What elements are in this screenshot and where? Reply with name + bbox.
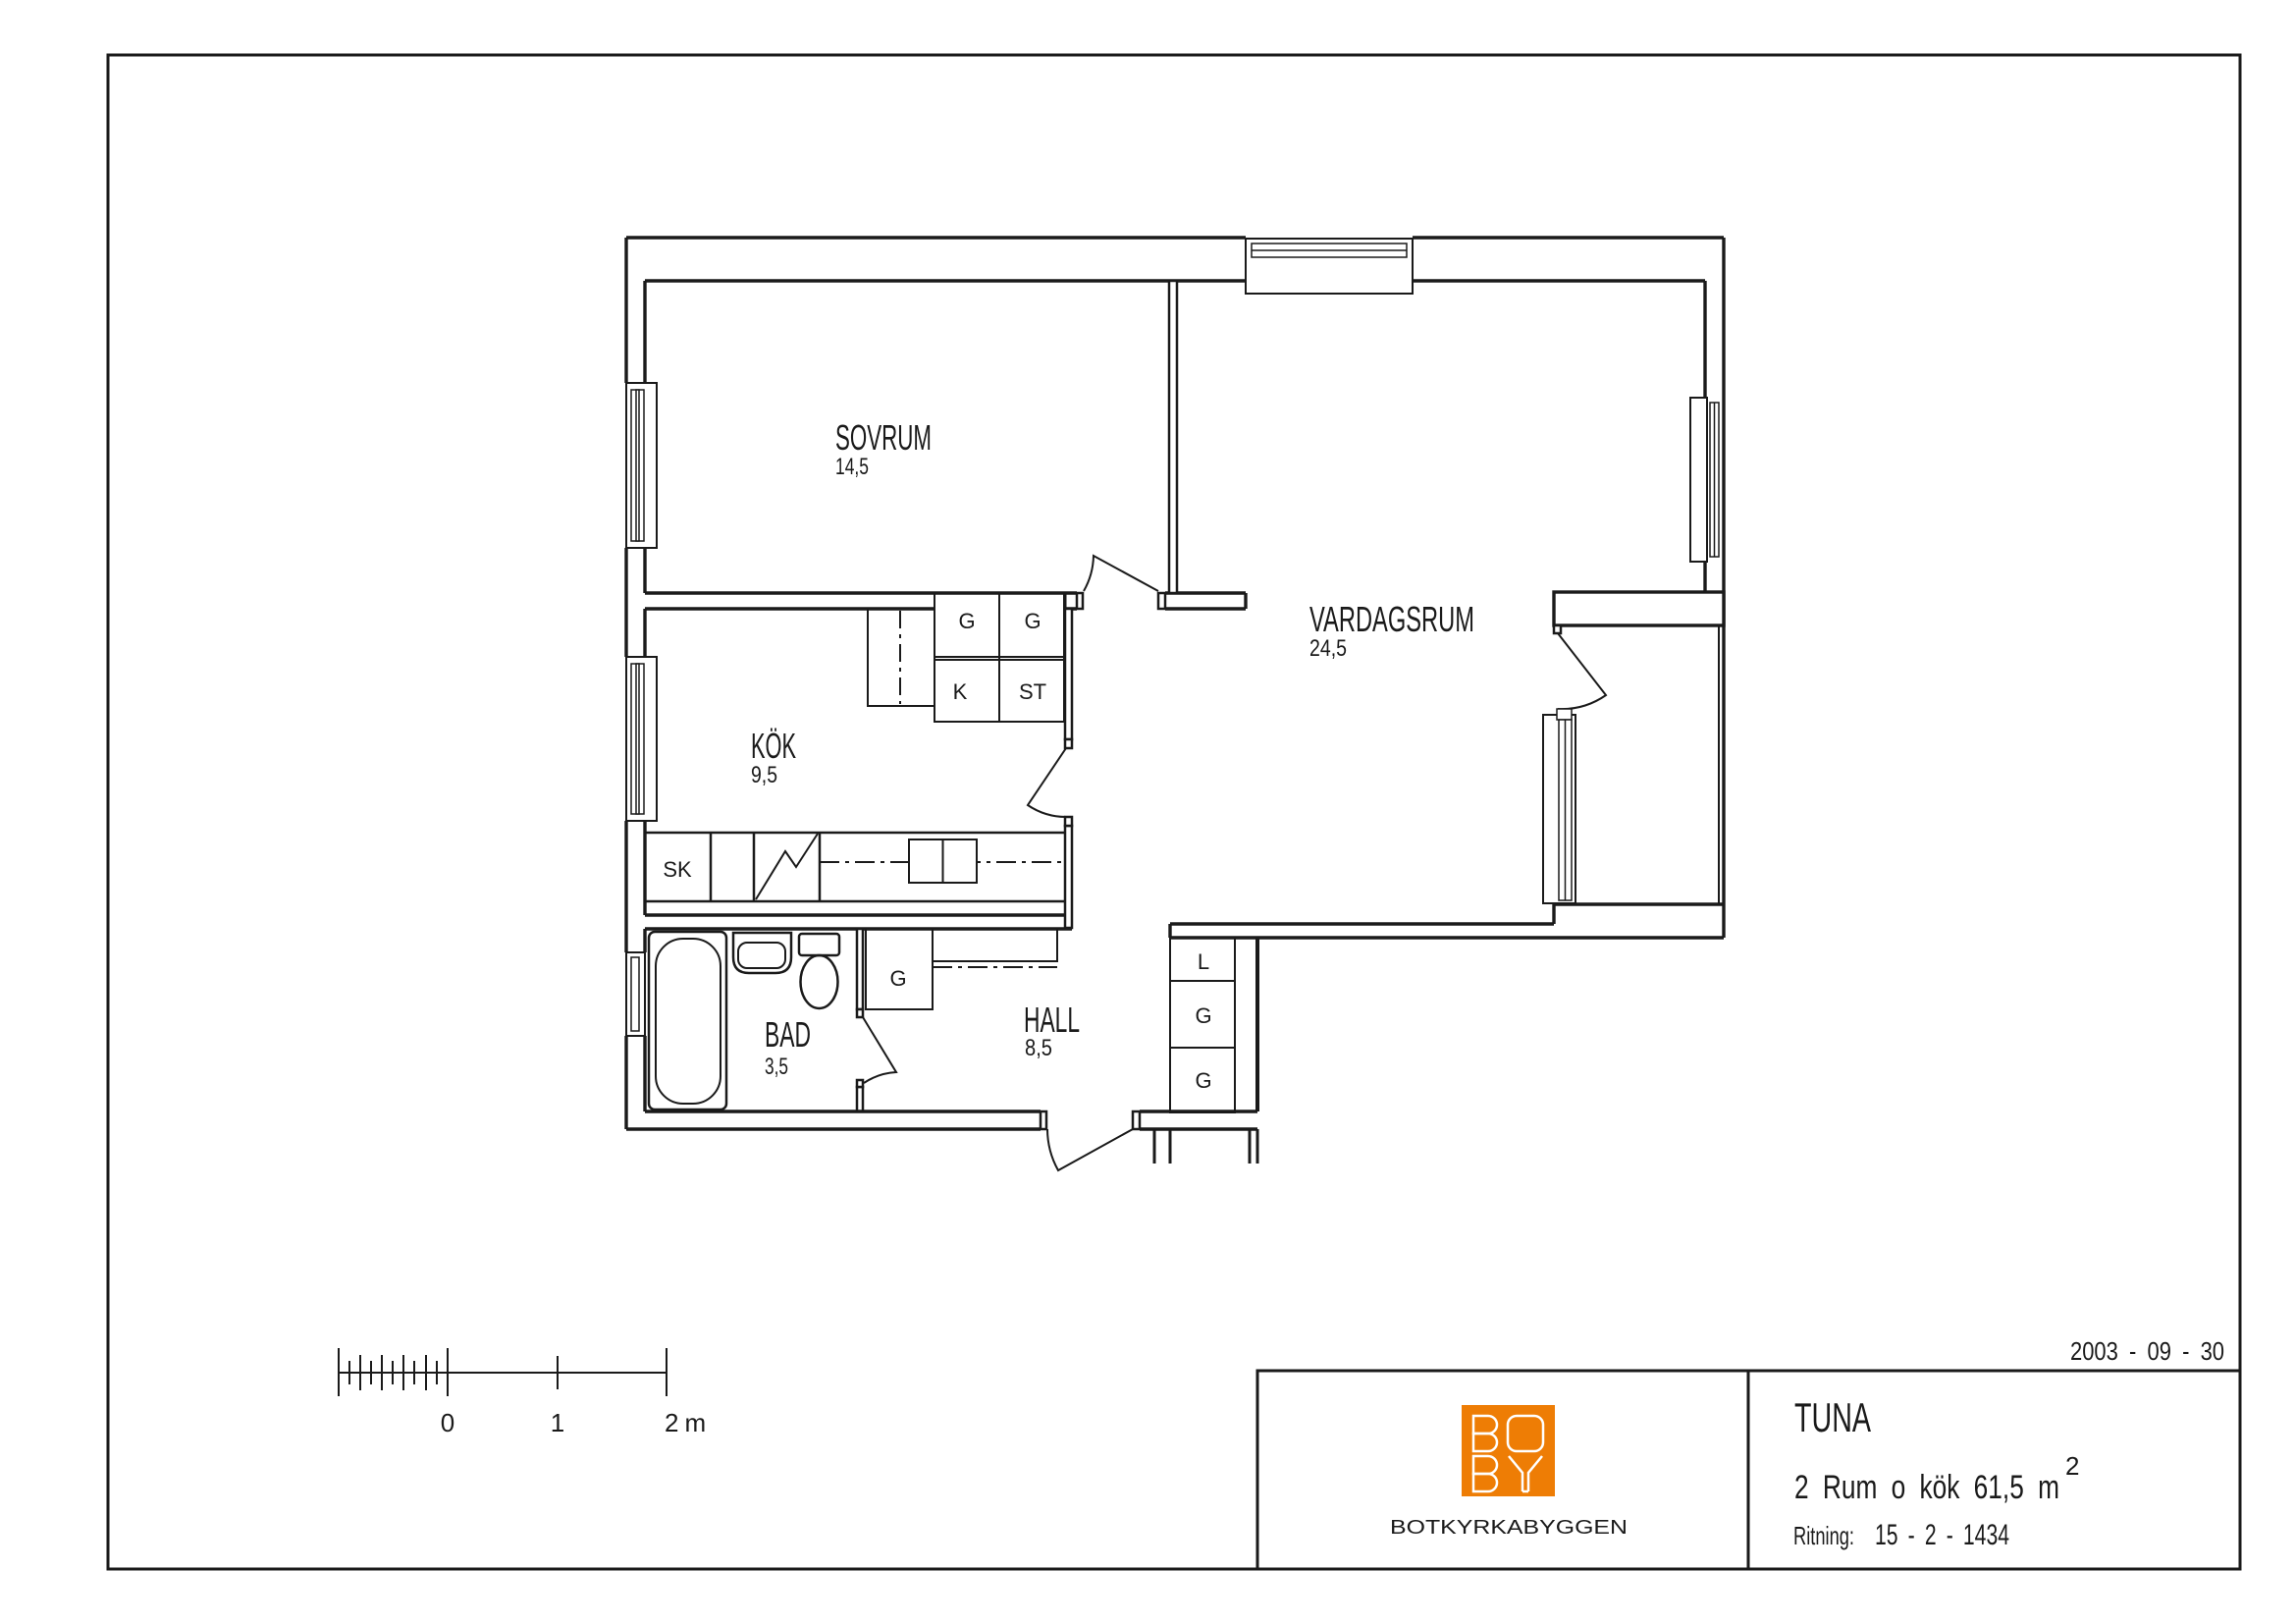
svg-text:3,5: 3,5 — [765, 1054, 788, 1080]
svg-text:9,5: 9,5 — [751, 762, 777, 788]
svg-text:8,5: 8,5 — [1025, 1035, 1052, 1061]
svg-text:2 Rum o kök 61,5 m: 2 Rum o kök 61,5 m — [1794, 1469, 2059, 1506]
svg-text:L: L — [1198, 949, 1209, 974]
svg-text:15 - 2 - 1434: 15 - 2 - 1434 — [1875, 1519, 2009, 1551]
svg-text:G: G — [889, 966, 906, 991]
svg-text:BAD: BAD — [765, 1014, 811, 1055]
svg-text:2003 - 09 - 30: 2003 - 09 - 30 — [2070, 1336, 2224, 1366]
svg-text:KÖK: KÖK — [751, 726, 796, 766]
svg-text:G: G — [1195, 1003, 1211, 1028]
svg-text:G: G — [1024, 609, 1041, 633]
svg-text:ST: ST — [1019, 679, 1046, 704]
svg-text:0: 0 — [441, 1408, 454, 1437]
svg-text:G: G — [1195, 1068, 1211, 1093]
svg-text:Ritning:: Ritning: — [1793, 1521, 1854, 1550]
svg-text:HALL: HALL — [1024, 1000, 1080, 1040]
svg-text:2m: 2m — [665, 1408, 712, 1437]
svg-text:1: 1 — [551, 1408, 564, 1437]
svg-text:14,5: 14,5 — [835, 454, 869, 480]
svg-text:24,5: 24,5 — [1309, 635, 1347, 662]
svg-text:VARDAGSRUM: VARDAGSRUM — [1309, 599, 1474, 639]
svg-text:G: G — [958, 609, 975, 633]
svg-text:SK: SK — [663, 857, 692, 882]
svg-text:SOVRUM: SOVRUM — [835, 417, 932, 458]
svg-text:TUNA: TUNA — [1794, 1394, 1871, 1440]
svg-text:K: K — [953, 679, 968, 704]
svg-text:BOTKYRKABYGGEN: BOTKYRKABYGGEN — [1390, 1517, 1628, 1539]
svg-text:2: 2 — [2065, 1451, 2079, 1481]
